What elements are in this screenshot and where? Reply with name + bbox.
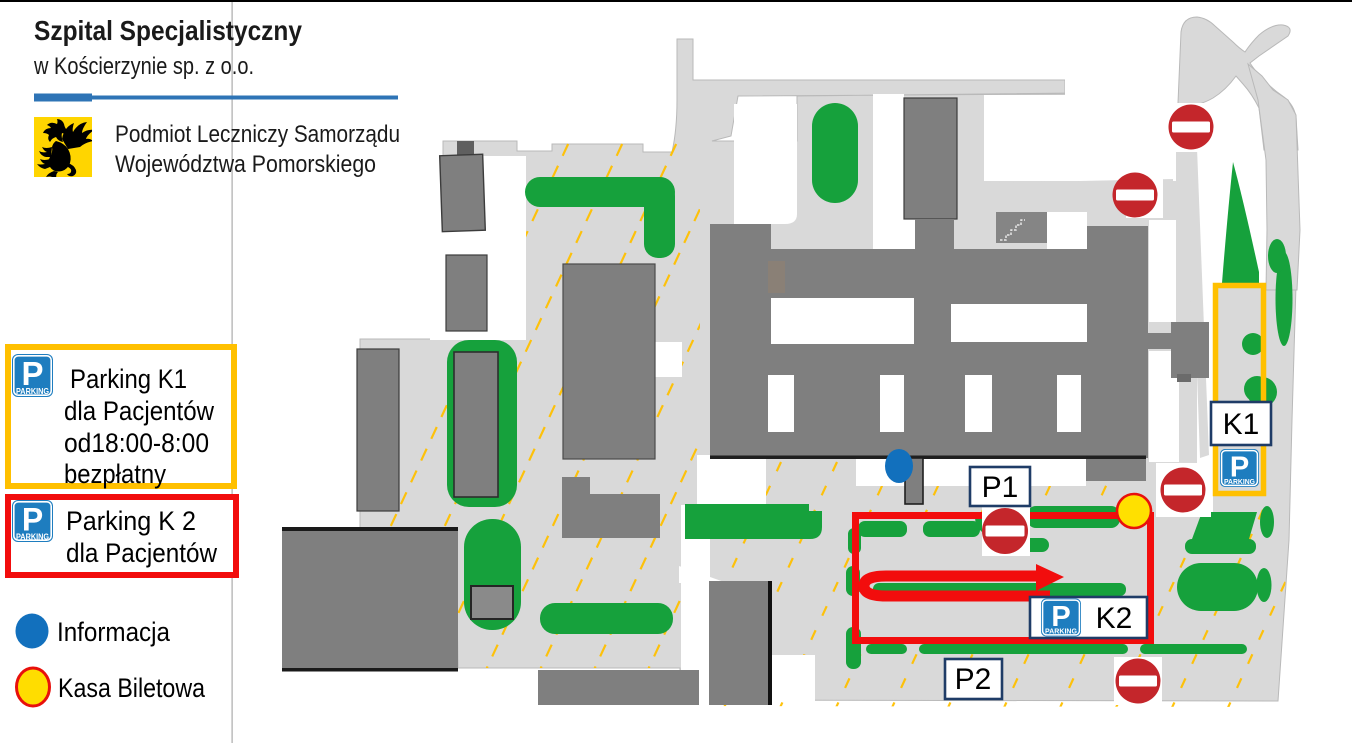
svg-text:PARKING: PARKING xyxy=(1045,627,1077,636)
svg-text:P2: P2 xyxy=(955,663,992,696)
svg-text:dla Pacjentów: dla Pacjentów xyxy=(66,538,217,568)
svg-text:Szpital Specjalistyczny: Szpital Specjalistyczny xyxy=(34,15,302,46)
svg-text:Parking K1: Parking K1 xyxy=(70,364,187,394)
svg-text:Parking K 2: Parking K 2 xyxy=(66,506,196,536)
svg-text:Województwa Pomorskiego: Województwa Pomorskiego xyxy=(115,151,376,178)
svg-text:Kasa Biletowa: Kasa Biletowa xyxy=(58,673,206,703)
svg-text:dla Pacjentów: dla Pacjentów xyxy=(64,396,214,426)
svg-text:K1: K1 xyxy=(1223,408,1260,441)
svg-text:od18:00-8:00: od18:00-8:00 xyxy=(64,428,209,458)
svg-text:P1: P1 xyxy=(982,471,1019,504)
svg-text:PARKING: PARKING xyxy=(16,386,49,396)
svg-text:Podmiot Leczniczy Samorządu: Podmiot Leczniczy Samorządu xyxy=(115,121,400,148)
svg-text:K2: K2 xyxy=(1096,602,1133,635)
svg-text:PARKING: PARKING xyxy=(16,532,49,542)
svg-text:w Kościerzynie sp. z o.o.: w Kościerzynie sp. z o.o. xyxy=(33,53,254,80)
svg-text:bezpłatny: bezpłatny xyxy=(64,459,166,489)
svg-text:Informacja: Informacja xyxy=(57,617,171,647)
svg-text:PARKING: PARKING xyxy=(1224,477,1255,486)
